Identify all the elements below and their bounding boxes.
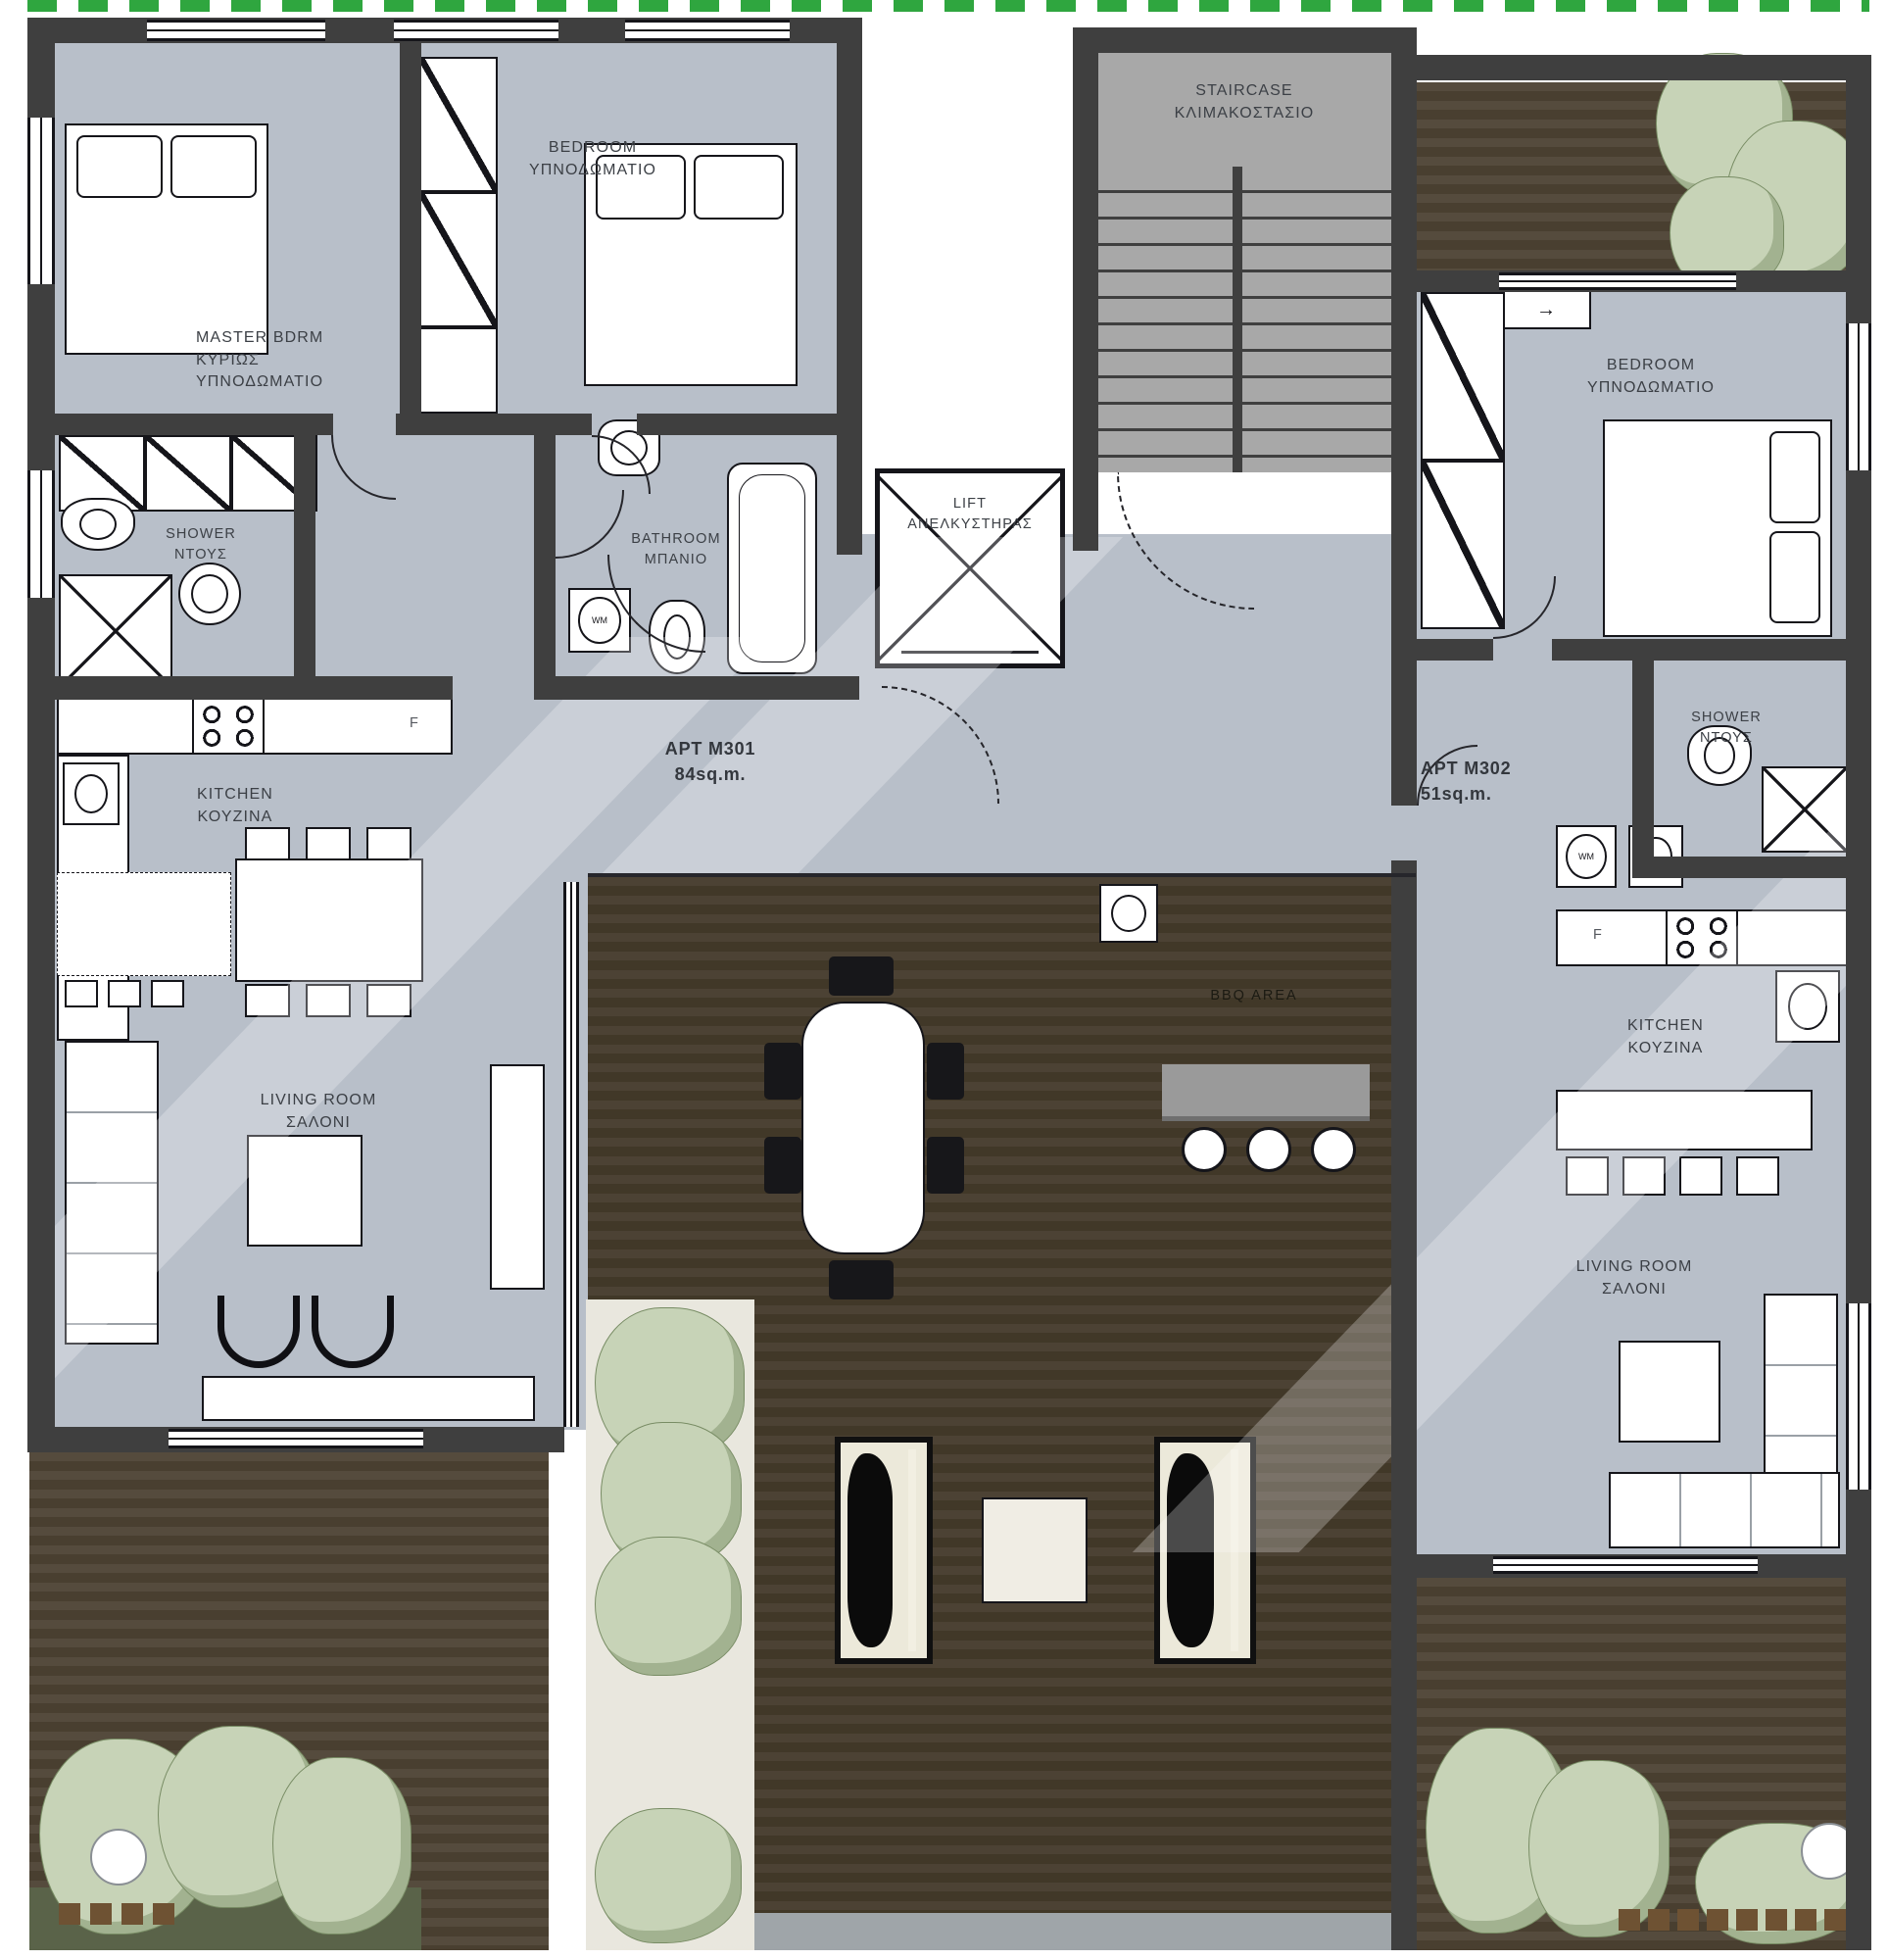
planter-box xyxy=(1824,1909,1846,1931)
wall xyxy=(1417,55,1871,80)
wall xyxy=(1073,27,1098,551)
staircase-label: STAIRCASE ΚΛΙΜΑΚΟΣΤΑΣΙΟ xyxy=(1097,80,1391,124)
bbq-grill xyxy=(1099,884,1158,943)
wall xyxy=(1632,857,1871,878)
sun-lounger xyxy=(1154,1437,1256,1664)
wall xyxy=(294,435,315,678)
wall xyxy=(27,676,453,700)
bbq-stool xyxy=(1246,1127,1291,1172)
bedroom2-pillow xyxy=(1769,531,1820,623)
staircase-steps xyxy=(1098,167,1391,472)
wardrobe-cell xyxy=(419,327,498,414)
glass-wall xyxy=(563,882,579,1427)
bedroom-label-apt2: BEDROOM ΥΠΝΟΔΩΜΑΤΙΟ xyxy=(1524,355,1778,399)
shower-label-el: ΝΤΟΥΣ xyxy=(118,545,284,565)
shower-label-en: SHOWER xyxy=(118,524,284,545)
kitchen-label-en: KITCHEN xyxy=(1568,1015,1764,1038)
planter-box xyxy=(1707,1909,1728,1931)
living-room-label-en: LIVING ROOM xyxy=(1517,1256,1752,1279)
bar-stool xyxy=(151,980,184,1007)
dining-chair xyxy=(306,827,351,860)
stove-hob xyxy=(192,698,265,755)
bar-stool xyxy=(65,980,98,1007)
bbq-stool xyxy=(1182,1127,1227,1172)
apt2-label: APT M302 51sq.m. xyxy=(1421,757,1607,807)
master-bedroom-label: MASTER BDRM ΚΥΡΙΩΣ ΥΠΝΟΔΩΜΑΤΙΟ xyxy=(196,327,411,394)
bedroom-label-el: ΥΠΝΟΔΩΜΑΤΙΟ xyxy=(1524,377,1778,400)
outdoor-dining-table xyxy=(801,1002,925,1254)
living-room-label-apt1: LIVING ROOM ΣΑΛΟΝΙ xyxy=(196,1090,441,1134)
wall xyxy=(1632,661,1654,878)
wall xyxy=(1073,27,1417,53)
bar-stool xyxy=(108,980,141,1007)
kitchen2-island xyxy=(1556,1090,1813,1151)
kitchen-sink xyxy=(63,762,120,825)
wall xyxy=(534,425,556,678)
window xyxy=(27,470,55,598)
kitchen-label-el: ΚΟΥΖΙΝΑ xyxy=(137,807,333,829)
bbq-counter xyxy=(1162,1064,1370,1121)
living-room-label-el: ΣΑΛΟΝΙ xyxy=(1517,1279,1752,1301)
kitchen-label-apt1: KITCHEN ΚΟΥΖΙΝΑ xyxy=(137,784,333,828)
window xyxy=(1499,272,1736,290)
wardrobe-cell xyxy=(1421,292,1505,461)
planter-box xyxy=(1677,1909,1699,1931)
outdoor-side-table xyxy=(982,1497,1088,1603)
lift-door xyxy=(901,651,1039,654)
lift-label-en: LIFT xyxy=(880,494,1060,514)
bar-stool xyxy=(1736,1156,1779,1196)
fridge-label: F xyxy=(400,713,429,734)
terrace-table xyxy=(90,1829,147,1886)
coffee-table xyxy=(1619,1341,1720,1443)
bedroom-label-apt1: BEDROOM ΥΠΝΟΔΩΜΑΤΙΟ xyxy=(460,137,725,181)
window xyxy=(27,118,55,284)
fridge-label: F xyxy=(1583,925,1613,946)
master-bedroom-label-en: MASTER BDRM xyxy=(196,327,411,350)
dining-table xyxy=(235,858,423,982)
master-closet-cell xyxy=(145,435,231,512)
hedge-dashes xyxy=(27,0,1869,12)
wardrobe-cell xyxy=(419,192,498,327)
kitchen-label-en: KITCHEN xyxy=(137,784,333,807)
tv-cabinet xyxy=(490,1064,545,1290)
wall xyxy=(27,414,333,435)
washing-machine-label: WM xyxy=(1578,852,1594,861)
dining-chair xyxy=(245,984,290,1017)
wall xyxy=(1391,27,1417,806)
coffee-table xyxy=(247,1135,363,1247)
living-room-label-el: ΣΑΛΟΝΙ xyxy=(196,1112,441,1135)
wall xyxy=(1391,860,1417,1950)
direction-arrow-box: → xyxy=(1501,290,1591,329)
planter-box xyxy=(153,1903,174,1925)
master-bed-pillow xyxy=(170,135,257,198)
planter-box xyxy=(121,1903,143,1925)
window xyxy=(625,20,790,41)
lift-label: LIFT ΑΝΕΛΚΥΣΤΗΡΑΣ xyxy=(880,494,1060,534)
staircase-rail xyxy=(1233,167,1242,472)
apt1-area: 84sq.m. xyxy=(617,762,803,788)
sliding-door xyxy=(1493,1556,1758,1574)
kitchen-island xyxy=(57,872,231,976)
master-bed-pillow xyxy=(76,135,163,198)
window xyxy=(1846,323,1871,470)
lift-label-el: ΑΝΕΛΚΥΣΤΗΡΑΣ xyxy=(880,514,1060,535)
outdoor-chair xyxy=(927,1043,964,1100)
bbq-stool xyxy=(1311,1127,1356,1172)
kitchen2-sink xyxy=(1775,970,1840,1043)
bathroom-label-el: ΜΠΑΝΙΟ xyxy=(573,550,779,570)
dining-chair xyxy=(245,827,290,860)
shower-tray xyxy=(59,574,172,688)
window xyxy=(1846,1303,1871,1490)
outdoor-chair xyxy=(829,956,894,996)
sun-lounger xyxy=(835,1437,933,1664)
staircase-label-en: STAIRCASE xyxy=(1097,80,1391,103)
master-bedroom-label-el2: ΥΠΝΟΔΩΜΑΤΙΟ xyxy=(196,371,411,394)
outdoor-chair xyxy=(927,1137,964,1194)
dining-chair xyxy=(366,827,411,860)
staircase-label-el: ΚΛΙΜΑΚΟΣΤΑΣΙΟ xyxy=(1097,103,1391,125)
bar-stool xyxy=(1679,1156,1722,1196)
apt1-name: APT M301 xyxy=(617,737,803,762)
planter-box xyxy=(1795,1909,1816,1931)
living-room-label-apt2: LIVING ROOM ΣΑΛΟΝΙ xyxy=(1517,1256,1752,1300)
washing-machine: WM xyxy=(1556,825,1617,888)
bathroom-label-en: BATHROOM xyxy=(573,529,779,550)
sofa xyxy=(1609,1472,1840,1548)
outdoor-chair xyxy=(764,1043,801,1100)
kitchen-label-el: ΚΟΥΖΙΝΑ xyxy=(1568,1038,1764,1060)
tree-grove-top-right xyxy=(1652,43,1869,300)
wall xyxy=(396,414,592,435)
bedroom2-pillow xyxy=(1769,431,1820,523)
sideboard xyxy=(202,1376,535,1421)
wall xyxy=(1417,639,1493,661)
shower-label-en: SHOWER xyxy=(1648,708,1805,728)
bathroom-label: BATHROOM ΜΠΑΝΙΟ xyxy=(573,529,779,569)
kitchen-label-apt2: KITCHEN ΚΟΥΖΙΝΑ xyxy=(1568,1015,1764,1059)
arrow-icon: → xyxy=(1536,299,1556,321)
tree-grove-planter-upper xyxy=(588,1299,752,1682)
shower-label-el: ΝΤΟΥΣ xyxy=(1648,728,1805,749)
sofa xyxy=(65,1041,159,1345)
shower-label-apt1: SHOWER ΝΤΟΥΣ xyxy=(118,524,284,564)
planter-box xyxy=(1766,1909,1787,1931)
bedroom-label-en: BEDROOM xyxy=(460,137,725,160)
wall xyxy=(1552,639,1846,661)
bbq-area-label-text: BBQ AREA xyxy=(1151,986,1357,1006)
bar-stool xyxy=(1566,1156,1609,1196)
wall xyxy=(534,676,859,700)
dining-chair xyxy=(306,984,351,1017)
apt2-name: APT M302 xyxy=(1421,757,1607,782)
apt1-label: APT M301 84sq.m. xyxy=(617,737,803,787)
washing-machine-label: WM xyxy=(592,615,607,625)
outdoor-chair xyxy=(829,1260,894,1299)
planter-box xyxy=(1736,1909,1758,1931)
floor-plan: WM F → WM xyxy=(0,0,1888,1960)
bbq-area-label: BBQ AREA xyxy=(1151,986,1357,1006)
tree-grove-planter-lower xyxy=(588,1799,752,1950)
courtyard-edge-band xyxy=(754,1913,1416,1950)
shower-label-apt2: SHOWER ΝΤΟΥΣ xyxy=(1648,708,1805,748)
master-bedroom-label-el1: ΚΥΡΙΩΣ xyxy=(196,350,411,372)
sliding-door xyxy=(169,1429,423,1448)
planter-box xyxy=(1648,1909,1670,1931)
dining-chair xyxy=(366,984,411,1017)
planter-box xyxy=(1619,1909,1640,1931)
living-room-label-en: LIVING ROOM xyxy=(196,1090,441,1112)
planter-box xyxy=(59,1903,80,1925)
sink xyxy=(178,563,241,625)
bedroom-label-en: BEDROOM xyxy=(1524,355,1778,377)
courtyard-boundary-line xyxy=(588,873,1416,877)
bar-stool xyxy=(1622,1156,1666,1196)
stove-hob xyxy=(1666,909,1738,966)
window xyxy=(394,20,558,41)
bedroom-label-el: ΥΠΝΟΔΩΜΑΤΙΟ xyxy=(460,160,725,182)
apt2-area: 51sq.m. xyxy=(1421,782,1607,808)
outdoor-chair xyxy=(764,1137,801,1194)
planter-box xyxy=(90,1903,112,1925)
wall xyxy=(637,414,862,435)
wall xyxy=(837,18,862,555)
shower-tray xyxy=(1762,766,1848,853)
window xyxy=(147,20,325,41)
